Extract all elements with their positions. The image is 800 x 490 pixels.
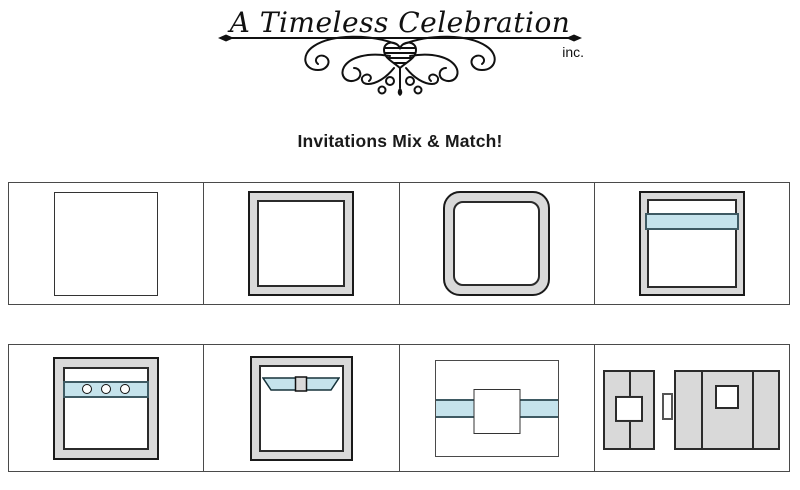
button-dot-icon — [120, 384, 130, 394]
gatefold-tab — [662, 393, 673, 420]
invitation-row-2 — [8, 344, 790, 472]
gatefold-card-icon — [603, 370, 780, 450]
cell-belly-band-card[interactable] — [399, 345, 594, 471]
frame-window — [63, 367, 149, 450]
button-band — [63, 381, 149, 398]
gatefold-window — [715, 385, 739, 409]
ribbon-band-frame-icon — [639, 191, 745, 296]
button-dot-icon — [101, 384, 111, 394]
cell-bow-frame[interactable] — [203, 345, 398, 471]
logo-suffix: inc. — [562, 44, 584, 60]
flyer-page: A Timeless Celebration inc. Invitations … — [0, 0, 800, 490]
cell-gatefold-card[interactable] — [594, 345, 789, 471]
cell-button-band-frame[interactable] — [9, 345, 203, 471]
belly-band-card-icon — [435, 360, 559, 457]
square-frame-card-icon — [248, 191, 354, 296]
invitation-row-1 — [8, 182, 790, 305]
cell-square-frame-card[interactable] — [203, 183, 398, 304]
ribbon-band — [645, 213, 739, 230]
bow-frame-icon — [250, 356, 353, 461]
gatefold-right-panel — [674, 370, 780, 450]
cell-plain-square-card[interactable] — [9, 183, 203, 304]
gatefold-window — [615, 396, 643, 422]
cell-ribbon-band-frame[interactable] — [594, 183, 789, 304]
frame-window — [257, 200, 345, 287]
gatefold-left-panel — [603, 370, 655, 450]
fold-line — [701, 372, 703, 448]
cell-rounded-frame-card[interactable] — [399, 183, 594, 304]
button-dot-icon — [82, 384, 92, 394]
logo-brand-text: A Timeless Celebration — [212, 6, 588, 39]
plain-square-card-icon — [54, 192, 158, 296]
page-title: Invitations Mix & Match! — [0, 131, 800, 152]
logo: A Timeless Celebration inc. — [212, 4, 588, 100]
fold-line — [752, 372, 754, 448]
bow-ribbon-icon — [262, 376, 340, 392]
belly-panel — [473, 389, 520, 434]
button-band-frame-icon — [53, 357, 159, 460]
frame-window — [453, 201, 540, 286]
rounded-frame-card-icon — [443, 191, 550, 296]
